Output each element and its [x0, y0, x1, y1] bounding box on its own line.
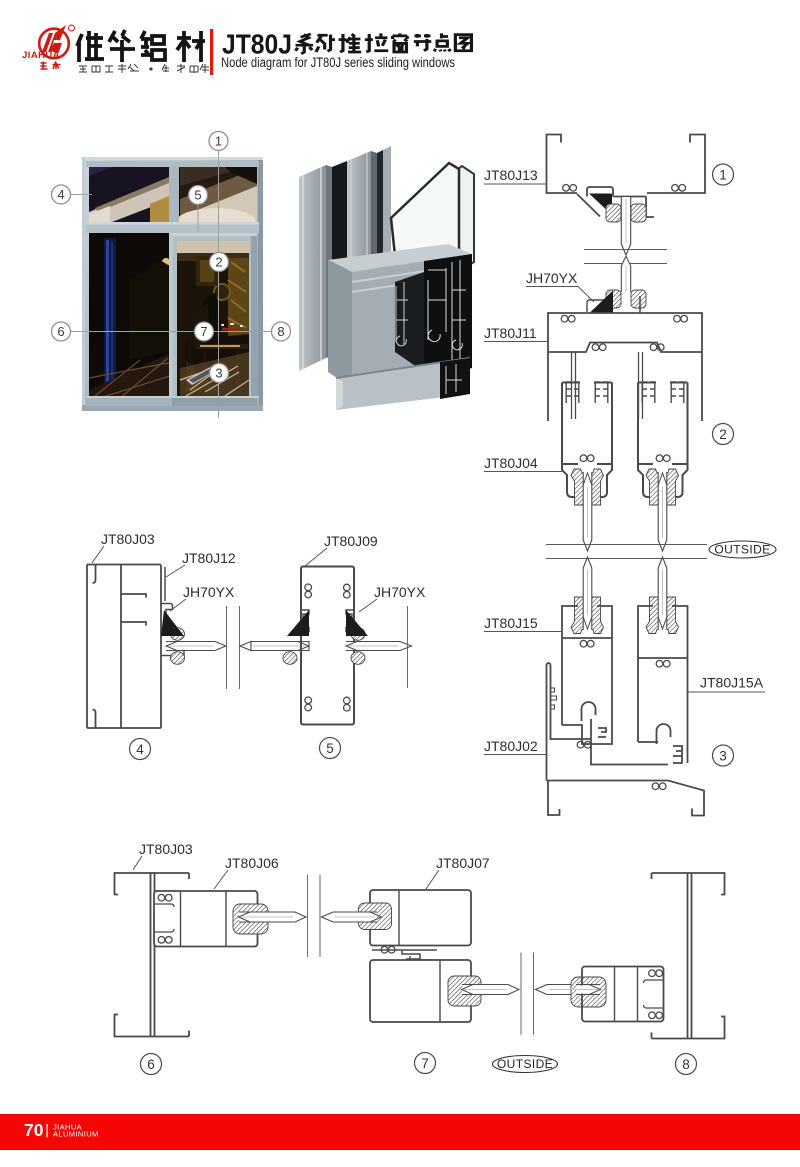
svg-text:JT80J12: JT80J12	[182, 550, 236, 566]
svg-text:JT80J09: JT80J09	[324, 533, 378, 549]
svg-text:JH70YX: JH70YX	[183, 584, 235, 600]
svg-text:2: 2	[215, 255, 222, 270]
svg-text:1: 1	[215, 134, 222, 149]
svg-text:JT80J07: JT80J07	[436, 855, 490, 871]
svg-text:2: 2	[719, 427, 727, 442]
svg-text:JT80J15A: JT80J15A	[700, 675, 764, 691]
svg-text:ALUMINIUM: ALUMINIUM	[53, 1130, 99, 1139]
svg-text:JT80J03: JT80J03	[139, 841, 193, 857]
svg-text:JH70YX: JH70YX	[374, 584, 426, 600]
svg-text:OUTSIDE: OUTSIDE	[497, 1057, 553, 1071]
svg-text:3: 3	[215, 366, 222, 381]
svg-text:7: 7	[421, 1056, 429, 1071]
svg-text:Node diagram for JT80J series: Node diagram for JT80J series sliding wi…	[221, 55, 455, 70]
svg-text:5: 5	[326, 741, 334, 756]
svg-text:OUTSIDE: OUTSIDE	[714, 543, 770, 557]
svg-text:4: 4	[136, 742, 144, 757]
svg-text:JT80J11: JT80J11	[484, 325, 537, 341]
svg-text:6: 6	[57, 324, 64, 339]
svg-text:JT80J15: JT80J15	[484, 615, 538, 631]
svg-text:4: 4	[57, 187, 64, 202]
svg-text:6: 6	[147, 1057, 155, 1072]
svg-text:8: 8	[682, 1057, 690, 1072]
svg-text:JT80J13: JT80J13	[484, 167, 538, 183]
svg-text:8: 8	[277, 324, 284, 339]
svg-text:7: 7	[200, 324, 207, 339]
svg-text:JT80J04: JT80J04	[484, 455, 538, 471]
svg-text:JT80J03: JT80J03	[101, 531, 155, 547]
svg-text:1: 1	[719, 168, 727, 183]
svg-text:70: 70	[24, 1120, 44, 1140]
svg-text:3: 3	[719, 749, 727, 764]
svg-text:JH70YX: JH70YX	[526, 270, 578, 286]
svg-text:JT80J06: JT80J06	[225, 855, 279, 871]
svg-text:5: 5	[194, 188, 201, 203]
svg-text:JIAHUA: JIAHUA	[22, 50, 60, 61]
svg-text:JT80J02: JT80J02	[484, 738, 538, 754]
